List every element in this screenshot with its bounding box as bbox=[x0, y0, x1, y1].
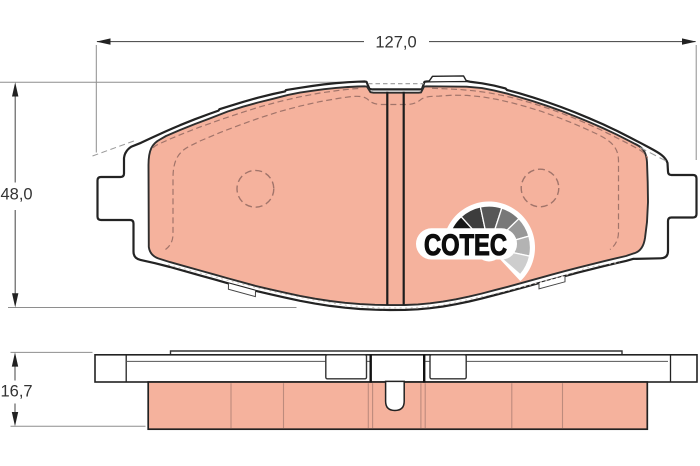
svg-text:COTEC: COTEC bbox=[424, 229, 507, 262]
svg-text:127,0: 127,0 bbox=[375, 33, 416, 51]
svg-text:16,7: 16,7 bbox=[1, 382, 33, 400]
svg-text:48,0: 48,0 bbox=[1, 186, 33, 204]
